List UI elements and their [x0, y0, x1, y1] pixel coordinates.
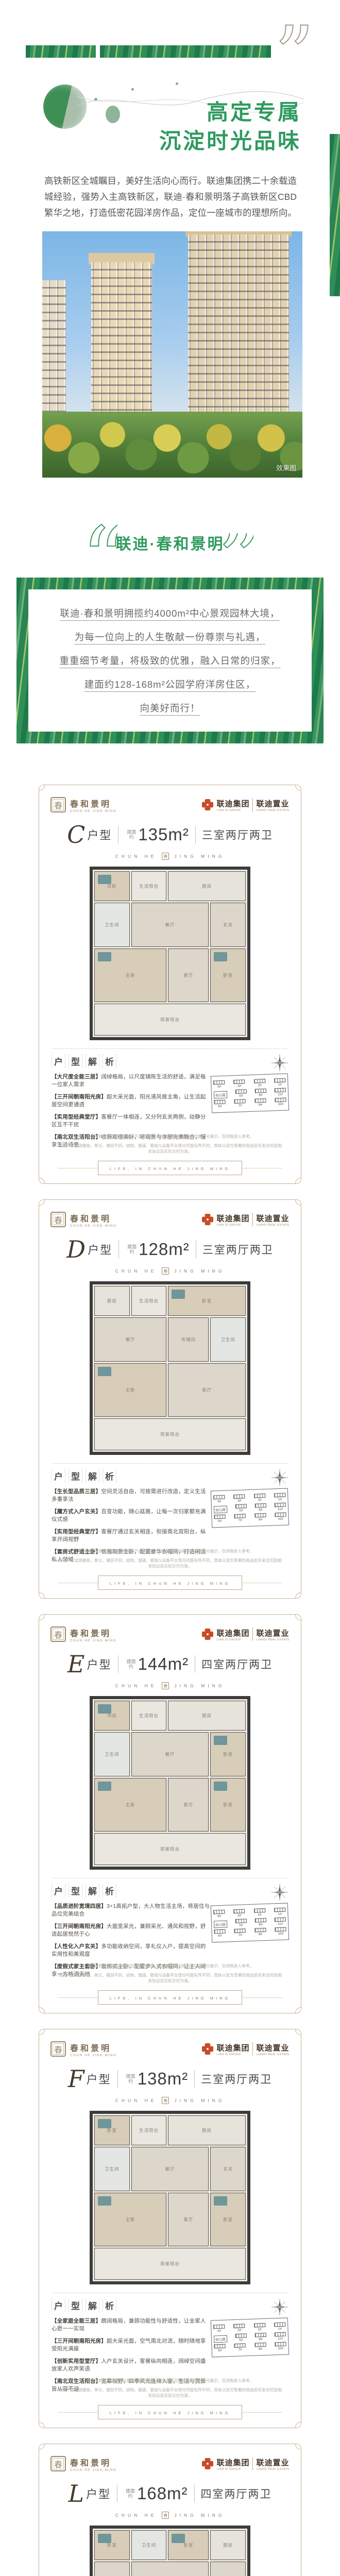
plan-room: 卫生间	[131, 2530, 167, 2560]
floorplan-card: 春 春和景明CHUN HE JING MING 联迪集团LIAN DI GROU…	[39, 2444, 301, 2576]
promise-line: 建面约128-168m²公园学府洋房住区，	[84, 677, 256, 691]
floorplan-card: 春 春和景明CHUN HE JING MING 联迪集团LIAN DI GROU…	[39, 2029, 301, 2428]
analysis-bullet: 【三开间朝南阳光房】超大采光面，阳光清风做主角，让生活起居空间更通透	[52, 1093, 211, 1108]
site-plan-building: 4#	[213, 1910, 225, 1919]
site-plan-building: 1#	[274, 1908, 286, 1917]
divider	[194, 2070, 195, 2088]
corner-notch	[295, 1178, 301, 1184]
unit-area: 128m²	[139, 1240, 190, 1259]
corner-notch	[39, 1199, 45, 1206]
promise-line: 联迪·春和景明拥揽约4000m²中心景观园林大境，	[60, 606, 280, 620]
unit-layout: 四室两厅两卫	[201, 1656, 273, 1672]
site-plan-building: 6#	[214, 1515, 226, 1523]
site-plan-kindergarten: 幼儿园	[214, 1921, 227, 1928]
analysis-bullet: 【实用型经典堂厅】客餐厅通过玄关相连，衔接南北双阳台，纵享开阔视野	[52, 1528, 211, 1543]
site-plan-building: 1#	[274, 1493, 286, 1502]
plan-room: 卫生间	[94, 2147, 130, 2191]
unit-letter: D	[66, 1238, 86, 1261]
divider	[195, 1655, 195, 1673]
brand-liandi: 联迪集团LIAN DI GROUP 联迪置业LIANDI REAL ESTATE	[202, 2042, 290, 2056]
site-plan-building: 1#	[274, 1078, 286, 1087]
analysis-bullet: 【大尺度全能三居】阔绰格局，以尺度铺陈生活的舒适，满足每一位家人需求	[52, 1073, 211, 1088]
floor-plan: 卧室卫生间卧室厨房衣帽间餐厅玄关主卧客厅观景阳台	[90, 2526, 250, 2576]
site-plan-building: 8#	[255, 1918, 267, 1927]
card-disclaimer-line1: 本宣传资料户型图为标准层产品示意图，仅作建筑空间格局、功能划分展示，仅供购房人参…	[58, 1963, 283, 1969]
corner-notch	[39, 1614, 45, 1620]
corner-notch	[39, 2422, 45, 2428]
mini-seal-icon: 春	[162, 1682, 169, 1689]
analysis-bullet: 【创新实用型堂厅】入户玄关设计，客餐纵向相连，阔绰空间盛放家人欢声笑语	[52, 2357, 211, 2372]
site-plan-building: 4#	[213, 1080, 225, 1089]
analysis-bullet: 【实用型经典堂厅】客餐厅一体相连，又分列玄关两侧，动静分区互不干扰	[52, 1113, 211, 1128]
card-disclaimer-line1: 本宣传资料户型图为标准层产品示意图，仅作建筑空间格局、功能划分展示，仅供购房人参…	[58, 1134, 283, 1140]
promise-line: 重重细节考量，将极致的优雅，融入日常的归家，	[59, 654, 280, 667]
analysis-bullet: 【全家庭全能三居】朗阔格局，兼顾功能性与舒适性，让全家人心愿一一实现	[52, 2317, 211, 2332]
divider	[194, 2485, 195, 2502]
analysis-bullet: 【品质进阶宽境四居】3+1高拓户型，大人物生活主场，将居住与品位完美结合	[52, 1902, 211, 1918]
site-plan-building: 3#	[233, 1494, 245, 1503]
unit-layout: 四室两厅两卫	[201, 2486, 272, 2501]
promise-frame: 联迪·春和景明拥揽约4000m²中心景观园林大境，为每一位向上的人生敬献一份尊崇…	[16, 578, 324, 743]
corner-notch	[295, 785, 301, 791]
divider	[118, 1241, 119, 1258]
card-disclaimer-line2: 相同户型会因楼栋、单元、楼层不同，结构、烟道、管线与设备平台等均可能有所不同，具…	[58, 2387, 283, 2399]
plan-room: 客厅	[168, 2193, 209, 2246]
site-plan-kindergarten: 幼儿园	[214, 2335, 227, 2343]
site-plan-building: 6#	[214, 2344, 226, 2353]
dashed-divider	[53, 2293, 287, 2293]
dashed-divider	[53, 1048, 287, 1049]
site-plan-building: 2#	[254, 2323, 266, 2332]
site-plan-building: 5#	[235, 1919, 247, 1927]
corner-notch	[295, 2444, 301, 2450]
site-plan-building: 8#	[255, 1503, 267, 1512]
floorplan-cards: 春 春和景明CHUN HE JING MING 联迪集团LIAN DI GROU…	[0, 785, 340, 2576]
hero-title-line1: 高定专属	[159, 98, 301, 127]
unit-suffix: 户型	[87, 2071, 111, 2087]
corner-notch	[295, 1199, 301, 1206]
mini-seal-icon: 春	[162, 2512, 169, 2519]
dashed-divider	[53, 1463, 287, 1464]
open-quote-icon: “	[81, 515, 117, 571]
card-disclaimer-line1: 本宣传资料户型图为标准层产品示意图，仅作建筑空间格局、功能划分展示，仅供购房人参…	[58, 2378, 283, 2384]
liandi-logo-icon	[202, 799, 213, 810]
site-plan-building: 6#	[214, 1929, 226, 1938]
site-plan-building: 4#	[213, 2325, 225, 2333]
green-side-band	[330, 134, 340, 296]
brand-liandi: 联迪集团LIAN DI GROUP 联迪置业LIANDI REAL ESTATE	[202, 1213, 290, 1227]
unit-area: 168m²	[137, 2484, 188, 2503]
analysis-title: 户型解析	[52, 1054, 211, 1068]
plan-room: 厨房	[168, 871, 246, 901]
plan-room: 厨房	[94, 1286, 130, 1316]
unit-letter: F	[68, 2067, 84, 2091]
brand-divider	[252, 2042, 253, 2056]
brand-liandi: 联迪集团LIAN DI GROUP 联迪置业LIANDI REAL ESTATE	[202, 798, 290, 812]
analysis-bullet: 【三开间朝南阳光房】超大采光面，空气南北对流，随时随地享受阳光满屋	[52, 2337, 211, 2352]
seal-logo-icon: 春	[50, 797, 66, 812]
area-prefix: 建面约	[125, 1659, 138, 1669]
plan-room: 客厅	[168, 948, 209, 1002]
unit-layout: 三室两厅两卫	[202, 827, 273, 842]
plan-room: 餐厅	[94, 1317, 166, 1362]
plan-room: 生活阳台	[131, 1701, 167, 1731]
liandi-logo-icon	[202, 2043, 213, 2055]
promise-line: 向美好而行！	[140, 701, 200, 715]
floorplan-card: 春 春和景明CHUN HE JING MING 联迪集团LIAN DI GROU…	[39, 1614, 301, 2013]
liandi-logo-icon	[202, 1629, 213, 1640]
unit-letter: L	[68, 2482, 84, 2505]
intro-paragraph: 高铁新区全城瞩目，美好生活向心而行。联迪集团携二十余载造城经验，强势入主高铁新区…	[44, 173, 297, 221]
liandi-logo-icon	[202, 1214, 213, 1225]
svg-text:“: “	[81, 515, 117, 571]
unit-suffix: 户型	[87, 1656, 112, 1672]
area-prefix: 建面约	[124, 2074, 138, 2084]
unit-suffix: 户型	[88, 1241, 112, 1258]
site-plan-building: 10#	[275, 1098, 286, 1107]
plan-room: 卧室	[168, 2530, 209, 2560]
card-disclaimer-line2: 相同户型会因楼栋、单元、楼层不同，结构、烟道、管线与设备平台等均可能有所不同，具…	[58, 1558, 283, 1569]
plan-room: 卧室	[210, 1778, 246, 1832]
unit-suffix: 户型	[86, 2485, 111, 2502]
analysis-title: 户型解析	[52, 1469, 211, 1483]
site-plan-building: 7#	[234, 1514, 246, 1522]
green-texture-bar-right	[100, 45, 271, 58]
brand-chunhejingming: 春 春和景明CHUN HE JING MING	[50, 2456, 117, 2472]
corner-notch	[39, 2007, 45, 2013]
corner-notch	[39, 2444, 45, 2450]
unit-subtitle: CHUN HE 春 JING MING	[39, 2511, 301, 2519]
floorplan-card: 春 春和景明CHUN HE JING MING 联迪集团LIAN DI GROU…	[39, 785, 301, 1184]
promise-line: 为每一位向上的人生敬献一份尊崇与礼遇，	[75, 630, 266, 643]
site-plan-building: 2#	[254, 1908, 266, 1917]
site-plan-building: 5#	[235, 1089, 247, 1098]
site-plan-building: 8#	[255, 1089, 267, 1097]
site-plan-building: 1#	[274, 2323, 286, 2331]
site-plan: 4#3#2#1#幼儿园5#8#11#6#7#9#10#	[211, 2317, 289, 2357]
plan-room: 卧室	[94, 2530, 130, 2560]
corner-notch	[295, 1592, 301, 1599]
site-plan-kindergarten: 幼儿园	[214, 1506, 227, 1514]
brand-chunhejingming: 春 春和景明CHUN HE JING MING	[50, 1212, 117, 1228]
unit-letter: E	[67, 1652, 85, 1676]
plan-room: 厨房	[168, 2115, 246, 2145]
hero-section: ” 高定专属 沉淀时光品味	[0, 0, 340, 165]
area-prefix: 建面约	[125, 829, 138, 840]
divider	[117, 2485, 117, 2502]
site-plan: 4#3#2#1#幼儿园5#8#11#6#7#9#10#	[211, 1903, 289, 1942]
unit-title: L 户型 建面约 168m² 四室两厅两卫	[39, 2479, 301, 2508]
promise-text-block: 联迪·春和景明拥揽约4000m²中心景观园林大境，为每一位向上的人生敬献一份尊崇…	[28, 589, 312, 732]
site-plan-building: 7#	[234, 1928, 246, 1937]
plan-room: 书房	[94, 1701, 130, 1731]
rendering-photo: 效果图	[42, 231, 302, 478]
landscape-trees	[42, 412, 302, 478]
unit-title: C 户型 建面约 135m² 三室两厅两卫	[39, 820, 301, 849]
site-plan: 4#3#2#1#幼儿园5#8#11#6#7#9#10#	[211, 1073, 289, 1113]
unit-subtitle: CHUN HE 春 JING MING	[39, 1682, 301, 1690]
plan-room: 观景阳台	[94, 2248, 246, 2280]
unit-title: D 户型 建面约 128m² 三室两厅两卫	[39, 1235, 301, 1264]
site-plan-kindergarten: 幼儿园	[214, 1091, 227, 1099]
life-tagline: LIFE, IN CHUN HE JING MING	[58, 1575, 282, 1590]
green-texture-bar-left	[26, 45, 96, 58]
corner-notch	[39, 1592, 45, 1599]
plan-room: 衣帽间	[168, 1317, 209, 1362]
corner-notch	[295, 2029, 301, 2035]
compass-icon	[271, 1054, 288, 1072]
site-plan-building: 7#	[234, 2343, 246, 2352]
divider	[117, 2070, 118, 2088]
site-plan-building: 9#	[254, 2343, 266, 2351]
corner-notch	[295, 2007, 301, 2013]
site-plan-building: 2#	[254, 1494, 266, 1502]
plan-room: 餐厅	[131, 903, 209, 947]
plan-room: 卫生间	[94, 1732, 130, 1776]
plan-room: 餐厅	[131, 2562, 209, 2576]
life-tagline: LIFE, IN CHUN HE JING MING	[58, 1161, 282, 1175]
compass-icon	[271, 2298, 288, 2316]
plan-room: 玄关	[210, 2147, 246, 2191]
plan-room: 主卧	[94, 1778, 166, 1832]
plan-room: 卧室	[210, 948, 246, 1002]
plan-room: 卧室	[210, 2193, 246, 2246]
brand-chunhejingming: 春 春和景明CHUN HE JING MING	[50, 1626, 117, 1642]
plan-room: 观景阳台	[94, 1833, 246, 1865]
corner-notch	[39, 785, 45, 791]
site-plan-building: 7#	[234, 1099, 246, 1108]
analysis-bullet: 【生长型品质三居】空间灵活自由，可按需进行改造，定义生活多重享法	[52, 1487, 211, 1503]
floor-plan: 厨房生活阳台卧室餐厅衣帽间卫生间主卧客厅观景阳台	[90, 1281, 250, 1455]
article-page: ” 高定专属 沉淀时光品味 高铁新区全城瞩目，美好生活向心而行。联迪集团携二十余…	[0, 0, 340, 2576]
site-plan-building: 5#	[235, 1504, 247, 1513]
plan-room: 餐厅	[131, 1732, 209, 1776]
plan-room: 玄关	[210, 903, 246, 947]
plan-room: 卧室	[94, 2115, 130, 2145]
divider	[118, 1655, 118, 1673]
photo-label: 效果图	[276, 463, 296, 472]
site-plan-building: 10#	[275, 1927, 286, 1936]
site-plan-building: 2#	[254, 1079, 266, 1088]
brand-chunhejingming: 春 春和景明CHUN HE JING MING	[50, 2041, 117, 2057]
analysis-title: 户型解析	[52, 2298, 211, 2312]
site-plan: 4#3#2#1#幼儿园5#8#11#6#7#9#10#	[211, 1488, 289, 1528]
plan-room: 客厅	[168, 1778, 209, 1832]
site-plan-building: 11#	[275, 2332, 286, 2341]
area-prefix: 建面约	[125, 1244, 139, 1255]
site-plan-building: 8#	[255, 2333, 267, 2342]
site-plan-building: 11#	[275, 1088, 286, 1097]
site-plan-building: 11#	[275, 1918, 286, 1926]
mini-seal-icon: 春	[162, 1267, 169, 1275]
unit-area: 138m²	[138, 2069, 189, 2089]
liandi-logo-icon	[202, 2458, 213, 2469]
unit-title: E 户型 建面约 144m² 四室两厅两卫	[39, 1650, 301, 1679]
site-plan-building: 3#	[233, 1909, 245, 1918]
plan-room: 次卧	[94, 871, 130, 901]
plan-room: 卧室	[168, 1286, 246, 1316]
unit-subtitle: CHUN HE 春 JING MING	[39, 1267, 301, 1275]
card-disclaimer-line1: 本宣传资料户型图为标准层产品示意图，仅作建筑空间格局、功能划分展示，仅供购房人参…	[58, 1549, 283, 1554]
project-name: 联迪·春和景明	[0, 529, 340, 560]
site-plan-building: 3#	[233, 2324, 245, 2332]
plan-room: 衣帽间	[94, 2562, 130, 2576]
card-disclaimer-line2: 相同户型会因楼栋、单元、楼层不同，结构、烟道、管线与设备平台等均可能有所不同，具…	[58, 1973, 283, 1984]
brand-divider	[252, 1628, 253, 1641]
plan-room: 餐厅	[131, 2147, 209, 2191]
plan-room: 客厅	[168, 1363, 246, 1417]
hero-title-line2: 沉淀时光品味	[159, 127, 301, 156]
brand-divider	[252, 1213, 253, 1226]
unit-subtitle: CHUN HE 春 JING MING	[39, 2096, 301, 2105]
plan-room: 观景阳台	[94, 1004, 246, 1036]
site-plan-building: 10#	[275, 1513, 286, 1521]
area-prefix: 建面约	[124, 2488, 137, 2499]
divider	[118, 826, 118, 843]
brand-liandi: 联迪集团LIAN DI GROUP 联迪置业LIANDI REAL ESTATE	[202, 1628, 290, 1641]
divider	[195, 826, 196, 843]
brand-divider	[252, 2457, 253, 2470]
site-plan-building: 4#	[213, 1495, 225, 1504]
plan-room: 厨房	[168, 1701, 246, 1731]
brand-chunhejingming: 春 春和景明CHUN HE JING MING	[50, 797, 117, 813]
analysis-bullet: 【三开间朝南阳光房】大面宽采光，兼顾采光、通风和视野，舒适起居悦然于心	[52, 1922, 211, 1938]
plan-room: 生活阳台	[131, 1286, 167, 1316]
site-plan-building: 9#	[254, 1928, 266, 1937]
site-plan-building: 5#	[235, 2333, 247, 2342]
unit-area: 144m²	[138, 1654, 189, 1674]
unit-subtitle: CHUN HE 春 JING MING	[39, 852, 301, 860]
floor-plan: 书房生活阳台厨房卫生间餐厅卧室主卧客厅卧室观景阳台	[90, 1696, 250, 1870]
project-badge: “ 联迪·春和景明 ”	[0, 529, 340, 560]
plan-room: 生活阳台	[131, 871, 167, 901]
site-plan-building: 10#	[275, 2342, 286, 2351]
floor-plan: 卧室生活阳台厨房卫生间餐厅玄关主卧客厅卧室观景阳台	[90, 2111, 250, 2284]
unit-layout: 三室两厅两卫	[201, 2071, 272, 2087]
plan-room: 主卧	[94, 948, 166, 1002]
dashed-divider	[53, 1878, 287, 1878]
unit-area: 135m²	[138, 825, 189, 844]
life-tagline: LIFE, IN CHUN HE JING MING	[58, 2405, 282, 2419]
seal-logo-icon: 春	[50, 1212, 66, 1227]
plan-room: 主卧	[94, 1363, 166, 1417]
mini-seal-icon: 春	[162, 853, 169, 860]
life-tagline: LIFE, IN CHUN HE JING MING	[58, 1990, 282, 2005]
corner-notch	[39, 2029, 45, 2035]
brand-divider	[252, 798, 253, 811]
analysis-bullet: 【魔方式入户玄关】百变功能，随心延展，让每一次归家都充满仪式感	[52, 1507, 211, 1523]
site-plan-building: 9#	[254, 1513, 266, 1522]
plan-room: 主卧	[94, 2193, 166, 2246]
analysis-title: 户型解析	[52, 1884, 211, 1897]
close-quote-icon: ”	[275, 21, 326, 67]
divider	[196, 1241, 196, 1258]
floorplan-card: 春 春和景明CHUN HE JING MING 联迪集团LIAN DI GROU…	[39, 1199, 301, 1599]
site-plan-building: 11#	[275, 1503, 286, 1512]
site-plan-building: 3#	[233, 1079, 245, 1088]
plan-room: 观景阳台	[94, 1418, 246, 1450]
seal-logo-icon: 春	[50, 1626, 66, 1642]
svg-text:”: ”	[275, 21, 314, 67]
compass-icon	[271, 1469, 288, 1486]
corner-notch	[295, 2422, 301, 2428]
card-disclaimer-line2: 相同户型会因楼栋、单元、楼层不同，结构、烟道、管线与设备平台等均可能有所不同，具…	[58, 1143, 283, 1155]
plan-room: 厨房	[210, 2530, 246, 2560]
floor-plan: 次卧生活阳台厨房卫生间餐厅玄关主卧客厅卧室观景阳台	[90, 867, 250, 1040]
corner-notch	[39, 1178, 45, 1184]
analysis-bullet: 【人性化入户玄关】多功能收纳空间，享礼仪入户，提高空间的实用性和美观度	[52, 1942, 211, 1958]
seal-logo-icon: 春	[50, 2041, 66, 2057]
plan-room: 卫生间	[210, 1317, 246, 1362]
compass-icon	[271, 1884, 288, 1901]
brand-liandi: 联迪集团LIAN DI GROUP 联迪置业LIANDI REAL ESTATE	[202, 2457, 290, 2471]
plan-room: 卧室	[210, 1732, 246, 1776]
unit-suffix: 户型	[87, 826, 112, 843]
seal-logo-icon: 春	[50, 2456, 66, 2471]
unit-letter: C	[67, 823, 85, 846]
corner-notch	[295, 1614, 301, 1620]
plan-room: 卫生间	[94, 903, 130, 947]
unit-title: F 户型 建面约 138m² 三室两厅两卫	[39, 2064, 301, 2093]
site-plan-building: 6#	[214, 1100, 226, 1109]
mini-seal-icon: 春	[162, 2097, 169, 2104]
site-plan-building: 9#	[254, 1098, 266, 1107]
plan-room: 生活阳台	[131, 2115, 167, 2145]
unit-layout: 三室两厅两卫	[202, 1242, 274, 1257]
plan-room: 玄关	[210, 2562, 246, 2576]
